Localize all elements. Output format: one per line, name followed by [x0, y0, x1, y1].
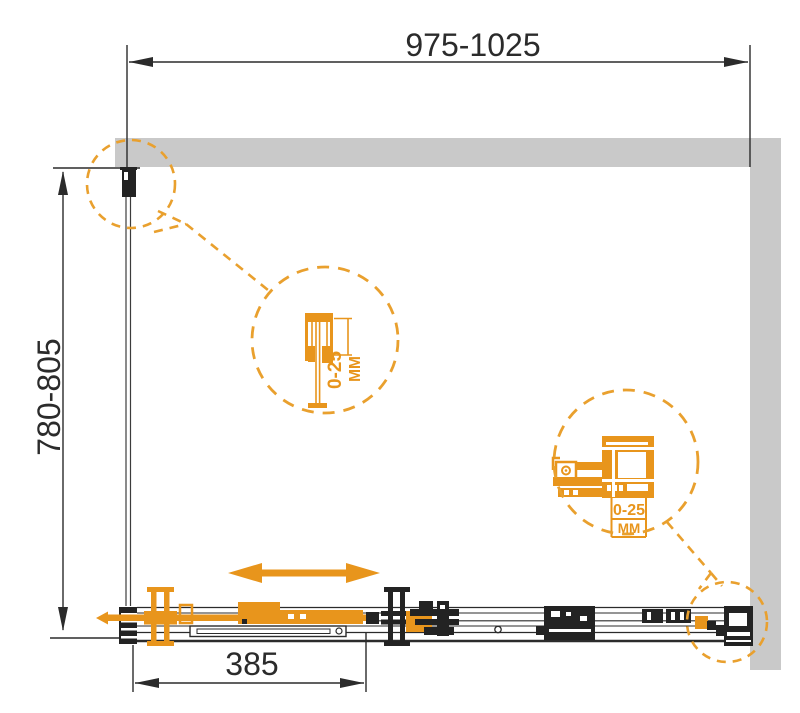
dim-depth-arrow-top: [58, 171, 68, 195]
roller-block-slot-bottom: [627, 484, 648, 491]
roller-block-divider-2: [602, 479, 654, 482]
adjuster-black: [707, 621, 716, 630]
adjuster-orange: [695, 616, 708, 629]
carriage-window-3: [580, 616, 587, 621]
detail-wall-profile: 0-25 ММ: [305, 313, 364, 408]
leader2-line: [667, 522, 711, 573]
roller-bar-2: [415, 619, 459, 625]
carriage-window-1: [551, 611, 560, 617]
bracket-slot: [727, 632, 750, 636]
bracket-band-1: [144, 611, 177, 616]
bracket2-web-right: [400, 587, 405, 646]
profile-fill-left: [308, 346, 315, 362]
roller-screw-dot: [565, 469, 568, 472]
roller-slot: [440, 605, 445, 609]
bottom-left-wall-profile: [119, 607, 137, 644]
fixed-panel-profile: [190, 626, 346, 637]
detail-profile-range-label: 0-25: [325, 351, 346, 389]
callouts: [87, 140, 767, 662]
bracket-line: [726, 640, 751, 642]
carriage-window-2: [566, 612, 571, 616]
side-glass-panel: [120, 167, 137, 606]
dim-width-label: 975-1025: [405, 27, 540, 63]
profile-left-wall: [305, 313, 308, 361]
bracket-web-left: [151, 587, 157, 646]
slide-direction-arrow: [228, 563, 380, 583]
roller-block-slot-top: [606, 442, 648, 445]
roller-lower-bar: [553, 477, 602, 486]
right-hardware: [642, 609, 716, 630]
wall-profile-top-notch: [124, 172, 128, 180]
bracket2-top-flange: [384, 587, 410, 592]
door-end-cap: [366, 612, 379, 624]
dim-depth-arrow-bottom: [58, 607, 68, 631]
dimension-depth: 780-805: [31, 168, 140, 638]
stop-slot-1: [647, 612, 651, 620]
detail-roller-range-label: 0-25: [613, 502, 645, 519]
bracket2-web-left: [388, 587, 393, 646]
technical-drawing-page: 975-1025 780-805 385: [0, 0, 800, 713]
roller-base-slit-2: [573, 490, 578, 495]
dim-door-arrow-right: [340, 678, 364, 688]
dim-width-arrow-left: [129, 57, 153, 67]
roller-step-bar: [576, 462, 602, 470]
housing-slot-2: [300, 614, 306, 619]
bracket-window: [729, 613, 747, 626]
callout-circle-wall-profile-detail: [252, 267, 398, 413]
leader1-line: [186, 224, 268, 290]
wall-right: [750, 138, 781, 670]
shower-enclosure-plan-svg: 975-1025 780-805 385: [0, 0, 800, 713]
roller-carriage: [495, 606, 595, 640]
roller-block-dash-2: [613, 485, 617, 491]
roller-base: [424, 627, 454, 635]
wall-top: [115, 138, 781, 167]
roller-bar-1: [410, 609, 459, 616]
detail-profile-unit-label: ММ: [347, 356, 364, 382]
housing-slot-1: [288, 614, 294, 619]
track-screw: [495, 626, 501, 632]
carriage-step: [536, 626, 545, 635]
carriage-slot: [549, 629, 591, 632]
stop-slot-2: [671, 612, 675, 620]
detail-roller: 0-25 ММ: [553, 436, 654, 537]
dim-door-label: 385: [225, 646, 278, 682]
leader1-fork-a: [158, 211, 186, 224]
roller-block-window: [618, 452, 646, 478]
roller-hardware-center: [406, 601, 459, 636]
stop-slot-3: [680, 612, 684, 620]
roller-base-slit-1: [564, 490, 569, 495]
bracket-band-2: [144, 620, 177, 625]
detail-glass-foot: [308, 403, 327, 408]
roller-block-dash-1: [607, 485, 611, 491]
dim-depth-label: 780-805: [31, 338, 67, 455]
panel-body: [190, 626, 346, 637]
roller-block-dash-3: [619, 485, 623, 491]
housing-screw: [242, 619, 247, 624]
profile-stripe-3: [121, 628, 137, 631]
bracket2-bottom-flange: [384, 641, 410, 646]
walls: [115, 138, 781, 670]
dim-door-arrow-left: [135, 678, 159, 688]
dim-width-arrow-right: [724, 57, 748, 67]
bracket-web-right: [164, 587, 170, 646]
stop-block-1: [642, 609, 663, 623]
profile-stripe-4: [121, 636, 137, 639]
roller-block-divider-1: [602, 447, 654, 450]
leader2-fork-a: [699, 573, 711, 589]
leader1-fork-b: [154, 224, 186, 232]
panel-screw: [336, 628, 342, 634]
